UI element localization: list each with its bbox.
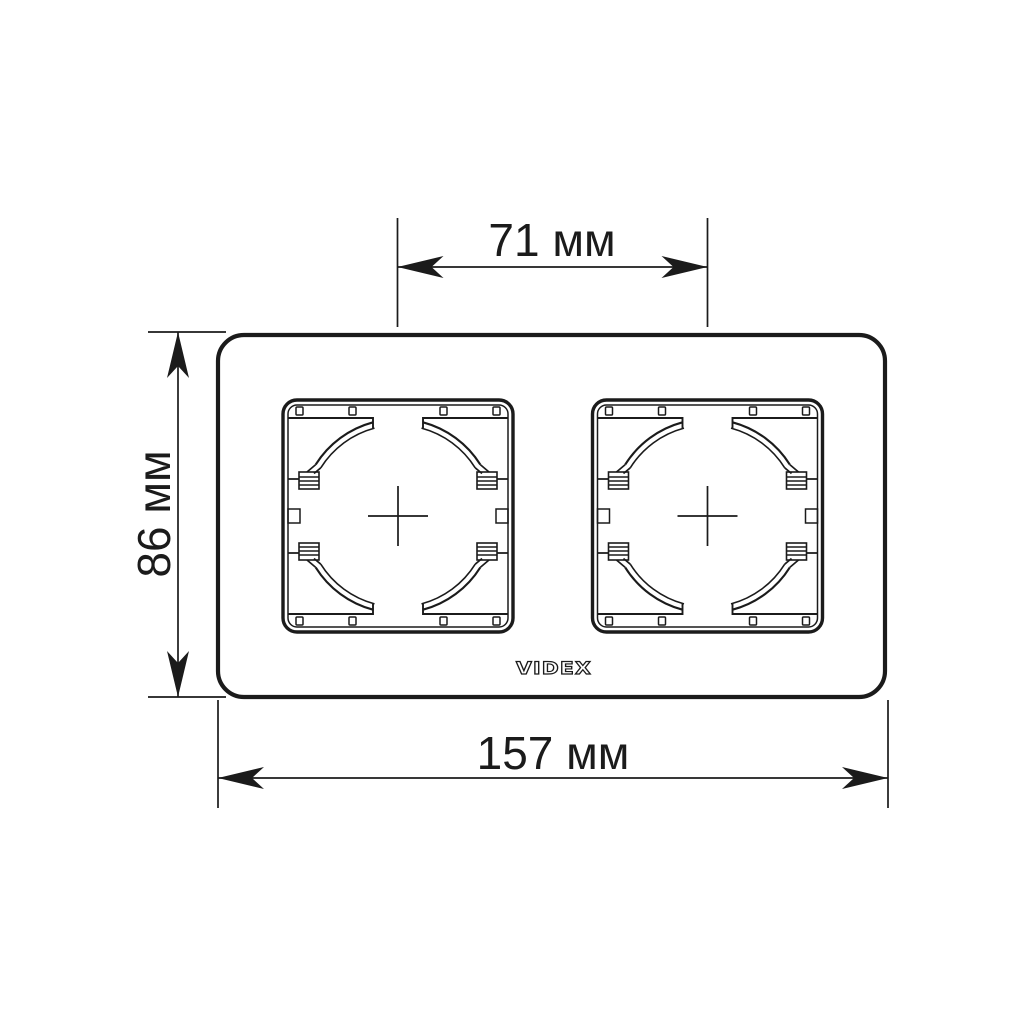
frame-outline (218, 335, 885, 697)
brand-logo: VIDEX (516, 659, 592, 679)
dimension-drawing: VIDEX 71 мм 86 мм 157 мм (0, 0, 1024, 1024)
dimension-left-label: 86 мм (128, 450, 180, 577)
frame-outer-edge (218, 335, 885, 697)
dimension-bottom-label: 157 мм (477, 727, 630, 779)
dimension-top-label: 71 мм (488, 214, 615, 266)
technical-drawing-page: VIDEX 71 мм 86 мм 157 мм (0, 0, 1024, 1024)
